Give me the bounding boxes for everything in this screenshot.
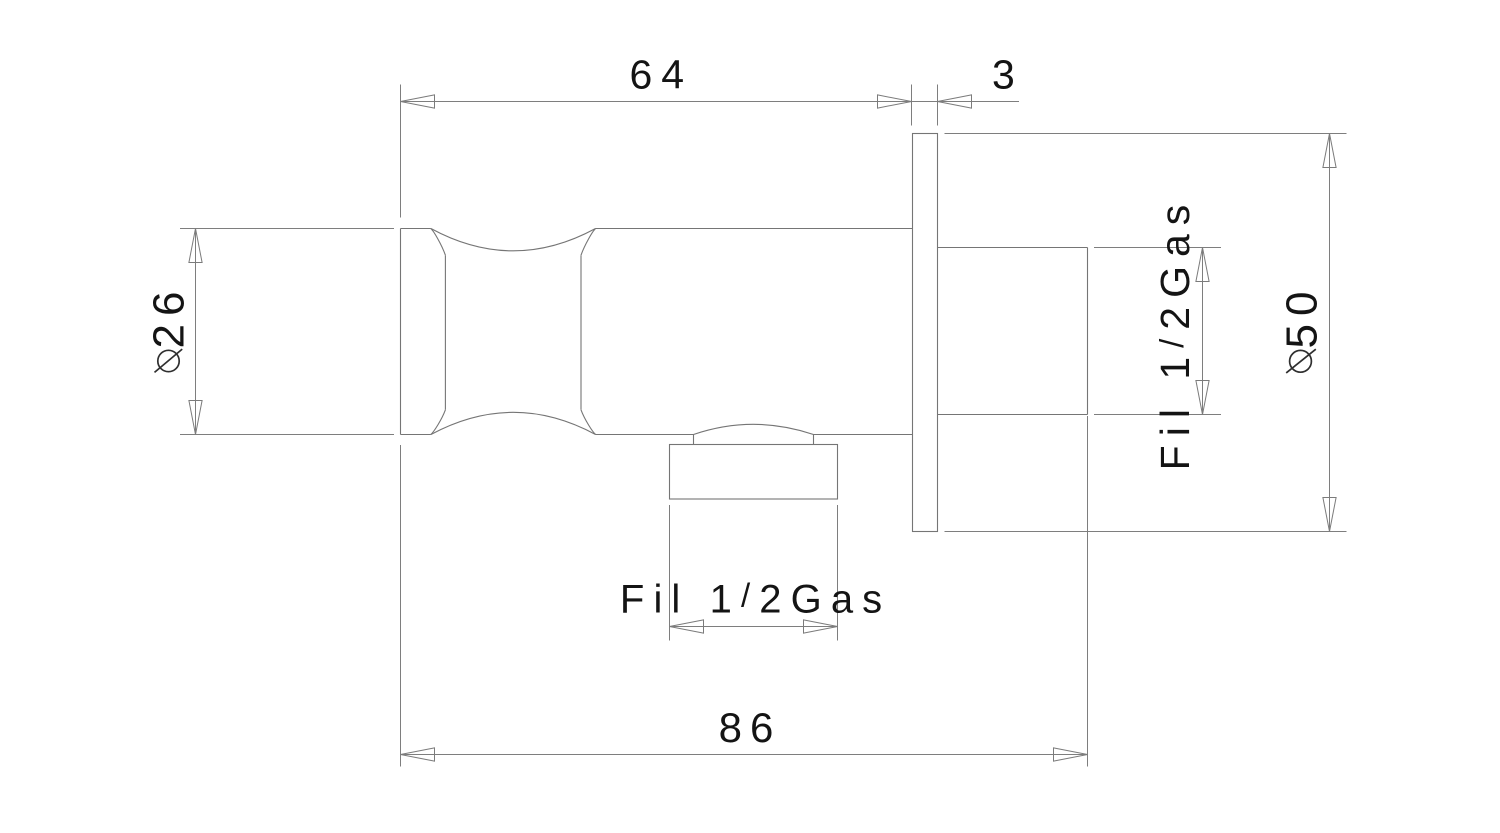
svg-text:86: 86 [719,704,782,751]
svg-text:3: 3 [992,51,1015,97]
svg-text:50: 50 [1278,284,1327,349]
svg-text:64: 64 [629,51,693,97]
svg-text:26: 26 [145,284,194,349]
